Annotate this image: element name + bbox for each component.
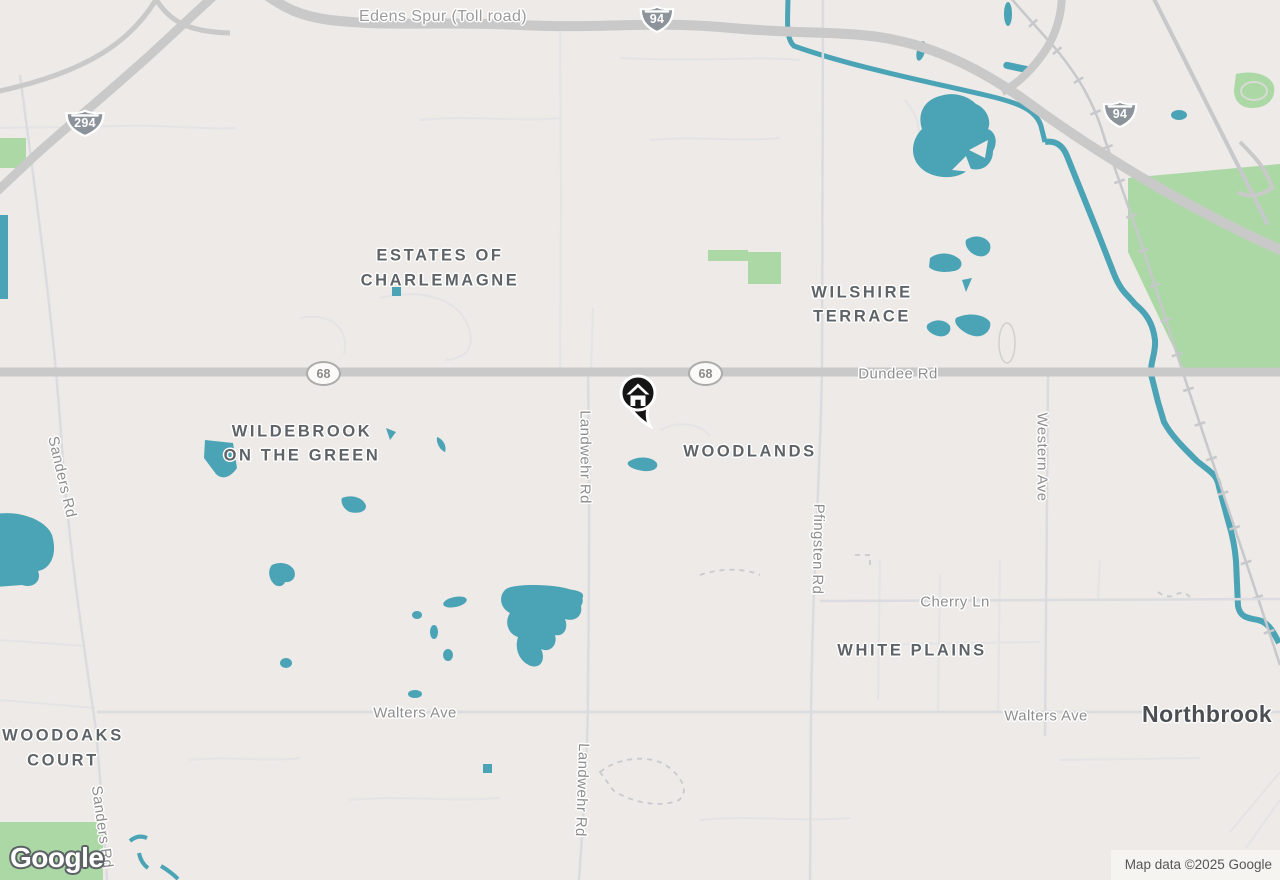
area-label-woodoaks-line2: COURT: [27, 752, 99, 771]
road-label-walters-west: Walters Ave: [373, 705, 457, 722]
road-label-walters-east: Walters Ave: [1004, 708, 1088, 725]
area-label-wilshire-line2: TERRACE: [813, 308, 911, 327]
area-label-estates-line1: ESTATES OF: [376, 247, 503, 266]
area-label-wilshire-line1: WILSHIRE: [811, 284, 912, 303]
map-viewport[interactable]: 94 94 294 68 68 ESTATES OF CHARLEMAGNE: [0, 0, 1280, 880]
city-label-northbrook: Northbrook: [1142, 701, 1272, 728]
map-attribution: Map data ©2025 Google: [1111, 850, 1280, 880]
road-label-landwehr-upper: Landwehr Rd: [577, 410, 594, 504]
interstate-94-shield-right: 94: [1100, 99, 1140, 128]
home-marker[interactable]: [612, 370, 668, 434]
interstate-294-shield: 294: [62, 108, 108, 137]
map-canvas[interactable]: [0, 0, 1280, 880]
area-label-white-plains: WHITE PLAINS: [837, 642, 986, 661]
route-number: 94: [1100, 107, 1140, 121]
road-label-cherry: Cherry Ln: [920, 594, 989, 611]
area-label-wildebrook-line2: ON THE GREEN: [224, 447, 381, 466]
road-label-pfingsten: Pfingsten Rd: [809, 504, 828, 595]
road-label-western: Western Ave: [1034, 413, 1051, 502]
google-logo[interactable]: Google: [10, 842, 103, 874]
road-label-dundee: Dundee Rd: [858, 366, 938, 383]
map-background: [0, 0, 1280, 880]
area-label-wildebrook-line1: WILDEBROOK: [232, 423, 373, 442]
route-number: 94: [637, 12, 677, 26]
area-label-woodlands: WOODLANDS: [683, 443, 816, 462]
state-route-68-shield-left: 68: [306, 361, 341, 386]
route-number: 294: [62, 116, 108, 130]
area-label-woodoaks-line1: WOODOAKS: [2, 727, 124, 746]
interstate-94-shield-top: 94: [637, 4, 677, 33]
state-route-68-shield-right: 68: [688, 361, 723, 386]
road-label-landwehr-lower: Landwehr Rd: [572, 743, 592, 837]
area-label-estates-line2: CHARLEMAGNE: [361, 272, 520, 291]
road-label-edens-spur: Edens Spur (Toll road): [359, 8, 527, 26]
